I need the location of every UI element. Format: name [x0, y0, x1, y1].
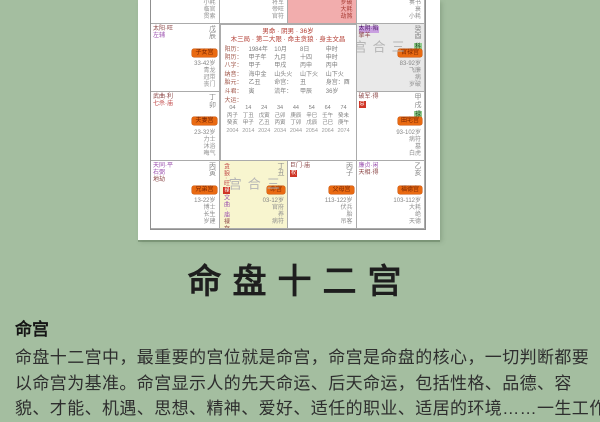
palace-cell: 武曲·利七杀·庙丁卯夫妻宫23-32岁力士沐浴晦气	[151, 92, 220, 161]
minor-star: 长生	[194, 212, 215, 219]
palace-stars: 破军·得忌	[359, 94, 379, 108]
minor-star: 沐浴	[194, 144, 215, 151]
runs-value: 14	[240, 105, 256, 113]
star-name: 天同·平	[153, 163, 173, 170]
article: 命宫 命盘十二宫中，最重要的宫位就是命宫，命宫是命盘的核心，一切判断都要 以命宫…	[15, 320, 587, 422]
runs-value: 庚辰	[288, 113, 304, 121]
palace-tag: 福德宫	[398, 186, 422, 194]
star-name: 太阴·陷	[359, 26, 379, 33]
info-value: 10月	[274, 46, 300, 54]
age-range: 93-102岁	[396, 130, 421, 137]
article-heading: 命宫	[15, 320, 587, 340]
palace-tag: 父母宫	[329, 186, 353, 194]
info-value: 甲子	[249, 62, 275, 70]
palace-cell: 三合宫太阴·陷擎羊癸酉科官禄宫83-92岁飞廉病岁破	[357, 24, 426, 93]
info-row: 阴历：甲子年九月十四申时	[225, 54, 352, 62]
info-row: 八字：甲子甲戌丙申丙申	[225, 62, 352, 70]
minor-star: 小耗	[400, 14, 421, 21]
info-value: 申时	[326, 46, 352, 54]
age-range: 33-42岁	[194, 61, 215, 68]
info-row: 胎元：乙丑命宫：丑身宫：酉	[225, 79, 352, 87]
runs-value: 己卯	[272, 113, 288, 121]
info-value: 寅	[249, 88, 275, 96]
minor-star: 病符	[263, 219, 284, 226]
minor-star: 绝	[393, 212, 421, 219]
palace-stars: 巨门·庙权	[290, 163, 310, 177]
star-name: 地劫	[153, 177, 173, 184]
year-value: 2044	[288, 128, 304, 136]
runs-value: 癸亥	[225, 120, 241, 128]
info-value: 山下火	[300, 71, 326, 79]
natal-chart-image: 廉贞·闲天相·得乙亥福德宫103-112岁大耗绝天德巨门·庙权丙子父母宫113-…	[138, 0, 440, 240]
runs-value: 乙丑	[256, 120, 272, 128]
age-notes: 103-112岁大耗绝天德	[393, 198, 421, 226]
minor-star: 贯索	[194, 14, 215, 21]
info-row: 纳音：海中金山头火山下火山下火	[225, 71, 352, 79]
runs-value: 24	[256, 105, 272, 113]
info-value: 十四	[300, 54, 326, 62]
info-value: 丙申	[326, 62, 352, 70]
info-value: 1984年	[249, 46, 275, 54]
info-value: 乙丑	[249, 79, 275, 87]
info-value: 山头火	[274, 71, 300, 79]
minor-star: 大耗	[393, 205, 421, 212]
info-row: 阳历：1984年10月8日申时	[225, 46, 352, 54]
branch-label: 戊辰	[209, 26, 217, 41]
decade-runs-label: 大运：	[225, 98, 352, 105]
minor-star: 冠带	[194, 75, 215, 82]
runs-value: 34	[272, 105, 288, 113]
star-name: 巨门·庙	[290, 163, 310, 170]
birth-info-table: 阳历：1984年10月8日申时阴历：甲子年九月十四申时八字：甲子甲戌丙申丙申纳音…	[225, 46, 352, 96]
article-line-1: 命盘十二宫中，最重要的宫位就是命宫，命宫是命盘的核心，一切判断都要	[15, 345, 587, 371]
minor-star: 大耗	[331, 7, 352, 14]
page: { "title": "命盘十二宫", "article": { "headin…	[0, 0, 600, 400]
minor-star: 力士	[194, 137, 215, 144]
palace-stars: 武曲·利七杀·庙	[153, 94, 173, 108]
branch-label: 甲戌	[414, 94, 422, 109]
transform-chip: 权	[290, 170, 297, 177]
info-value: 山下火	[326, 71, 352, 79]
runs-value: 丙子	[225, 113, 241, 121]
age-notes: 43-52岁小耗临官贯索	[194, 0, 215, 21]
star-name: 右弼	[153, 170, 173, 177]
info-value: 8日	[300, 46, 326, 54]
watermark-sanhegong: 三合宫	[357, 40, 407, 74]
info-value: 海中金	[249, 71, 275, 79]
age-notes: 113-122岁伏兵胎吊客	[325, 198, 353, 226]
info-value: 流年：	[274, 88, 300, 96]
minor-star: 丧门	[194, 82, 215, 89]
info-value: 甲辰	[300, 88, 326, 96]
star-name: 七杀·庙	[153, 101, 173, 108]
runs-value: 74	[336, 105, 352, 113]
star-name: 左辅	[153, 33, 173, 40]
info-value: 甲戌	[274, 62, 300, 70]
palace-tag: 子女宫	[192, 49, 216, 57]
runs-row: 0414243444546474	[225, 105, 352, 113]
palace-stars: 廉贞·闲天相·得	[359, 163, 379, 177]
info-value: 身宫：酉	[326, 79, 352, 87]
runs-value: 辛巳	[304, 113, 320, 121]
palace-cell: 破军·陷辛未迁移宫63-72岁岁破大耗劫煞	[288, 0, 357, 24]
palace-cell: 紫微·庙文昌庚午疾厄宫53-62岁将军帝旺官符	[220, 0, 289, 24]
minor-star: 墓	[396, 144, 421, 151]
year-value: 2054	[304, 128, 320, 136]
runs-value: 丁丑	[240, 113, 256, 121]
minor-star: 病	[400, 75, 421, 82]
palace-tag: 夫妻宫	[192, 117, 216, 125]
star-name: 禄存	[223, 218, 229, 230]
minor-star: 岁建	[194, 219, 215, 226]
runs-value: 癸未	[336, 113, 352, 121]
decade-runs-table: 大运： 0414243444546474丙子丁丑戊寅己卯庚辰辛巳壬午癸未癸亥甲子…	[225, 98, 352, 135]
age-notes: 13-22岁博士长生岁建	[194, 198, 215, 226]
minor-star: 晦气	[194, 151, 215, 158]
minor-star: 衰	[400, 7, 421, 14]
minor-star: 劫煞	[331, 14, 352, 21]
minor-star: 岁破	[400, 82, 421, 89]
age-range: 113-122岁	[325, 198, 353, 205]
info-value: 丑	[300, 79, 326, 87]
page-title: 命盘十二宫	[0, 254, 600, 303]
chart-info-line2: 木三局 · 第二大限 · 命主贪狼 · 身主文昌	[225, 36, 352, 44]
minor-star: 青龙	[194, 68, 215, 75]
minor-star: 帝旺	[263, 7, 284, 14]
palace-cell: 廉贞·闲天相·得乙亥福德宫103-112岁大耗绝天德	[357, 161, 426, 230]
year-value: 2064	[320, 128, 336, 136]
star-name: 太阳·旺	[153, 26, 173, 33]
palace-cell: 天府·得壬申交友宫73-82岁奏书衰小耗	[357, 0, 426, 24]
star-name: 擎羊	[359, 33, 379, 40]
info-label: 阳历：	[225, 46, 249, 54]
runs-value: 64	[320, 105, 336, 113]
watermark-sanhegong: 三合宫	[225, 177, 282, 211]
runs-value: 庚午	[336, 120, 352, 128]
year-value: 2014	[240, 128, 256, 136]
info-value: 丙申	[300, 62, 326, 70]
palace-stars: 太阳·旺左辅	[153, 26, 173, 40]
age-notes: 33-42岁青龙冠带丧门	[194, 61, 215, 89]
palace-cell: 天机·平己巳财帛宫43-52岁小耗临官贯索	[151, 0, 220, 24]
minor-star: 临官	[194, 7, 215, 14]
year-value: 2004	[225, 128, 241, 136]
year-value: 2074	[336, 128, 352, 136]
branch-label: 丁卯	[209, 94, 217, 109]
age-notes: 73-82岁奏书衰小耗	[400, 0, 421, 21]
age-notes: 53-62岁将军帝旺官符	[263, 0, 284, 21]
info-label: 阴历：	[225, 54, 249, 62]
palace-cell: 三合宫贪狼·旺禄文曲·庙禄存丁丑命宫03-12岁官府养病符	[220, 161, 289, 230]
palace-tag: 田宅宫	[398, 117, 422, 125]
year-value: 2024	[256, 128, 272, 136]
year-value: 2034	[272, 128, 288, 136]
info-label: 斗君：	[225, 88, 249, 96]
runs-value: 戊辰	[304, 120, 320, 128]
minor-star: 博士	[194, 205, 215, 212]
star-name: 武曲·利	[153, 94, 173, 101]
transform-chip: 忌	[359, 101, 366, 108]
info-value: 36岁	[326, 88, 352, 96]
palace-stars: 天同·平右弼地劫	[153, 163, 173, 184]
branch-label: 丙子	[346, 163, 354, 178]
age-notes: 23-32岁力士沐浴晦气	[194, 130, 215, 158]
runs-value: 44	[288, 105, 304, 113]
runs-row: 癸亥甲子乙丑丙寅丁卯戊辰己巳庚午	[225, 120, 352, 128]
branch-label: 丁丑	[277, 163, 285, 178]
info-value: 申时	[326, 54, 352, 62]
runs-value: 丁卯	[288, 120, 304, 128]
info-label: 纳音：	[225, 71, 249, 79]
minor-star: 养	[263, 212, 284, 219]
info-value: 甲子年	[249, 54, 275, 62]
runs-row: 丙子丁丑戊寅己卯庚辰辛巳壬午癸未	[225, 113, 352, 121]
minor-star: 病符	[396, 137, 421, 144]
palace-cell: 巨门·庙权丙子父母宫113-122岁伏兵胎吊客	[288, 161, 357, 230]
minor-star: 吊客	[325, 219, 353, 226]
minor-star: 官符	[263, 14, 284, 21]
palace-stars: 太阴·陷擎羊	[359, 26, 379, 40]
info-value: 九月	[274, 54, 300, 62]
info-row: 斗君：寅流年：甲辰36岁	[225, 88, 352, 96]
age-range: 23-32岁	[194, 130, 215, 137]
star-name: 天相·得	[359, 170, 379, 177]
runs-value: 壬午	[320, 113, 336, 121]
runs-value: 己巳	[320, 120, 336, 128]
palace-cell: 天同·平右弼地劫丙寅兄弟宫13-22岁博士长生岁建	[151, 161, 220, 230]
palace-grid: 廉贞·闲天相·得乙亥福德宫103-112岁大耗绝天德巨门·庙权丙子父母宫113-…	[150, 0, 426, 230]
center-info-panel: 男命 · 阴男 · 36岁 木三局 · 第二大限 · 命主贪狼 · 身主文昌 阳…	[220, 24, 357, 161]
palace-cell: 太阳·旺左辅戊辰子女宫33-42岁青龙冠带丧门	[151, 24, 220, 93]
runs-value: 甲子	[240, 120, 256, 128]
info-label: 胎元：	[225, 79, 249, 87]
runs-value: 戊寅	[256, 113, 272, 121]
chart-info-line1: 男命 · 阴男 · 36岁	[225, 28, 352, 36]
minor-star: 白虎	[396, 151, 421, 158]
article-line-2: 以命宫为基准。命宫显示人的先天命运、后天命运，包括性格、品德、容	[15, 371, 587, 397]
age-notes: 63-72岁岁破大耗劫煞	[331, 0, 352, 21]
runs-value: 丙寅	[272, 120, 288, 128]
branch-label: 癸酉	[414, 26, 422, 41]
runs-value: 54	[304, 105, 320, 113]
palace-cell: 破军·得忌甲戌禄田宅宫93-102岁病符墓白虎	[357, 92, 426, 161]
minor-star: 伏兵	[325, 205, 353, 212]
palace-tag: 兄弟宫	[192, 186, 216, 194]
age-range: 13-22岁	[194, 198, 215, 205]
info-label: 八字：	[225, 62, 249, 70]
star-name: 廉贞·闲	[359, 163, 379, 170]
star-name: 破军·得	[359, 94, 379, 101]
runs-value: 04	[225, 105, 241, 113]
minor-star: 天德	[393, 219, 421, 226]
decade-years-row: 20042014202420342044205420642074	[225, 128, 352, 136]
branch-label: 丙寅	[209, 163, 217, 178]
info-value: 命宫：	[274, 79, 300, 87]
branch-label: 乙亥	[414, 163, 422, 178]
age-range: 103-112岁	[393, 198, 421, 205]
minor-star: 胎	[325, 212, 353, 219]
age-notes: 93-102岁病符墓白虎	[396, 130, 421, 158]
